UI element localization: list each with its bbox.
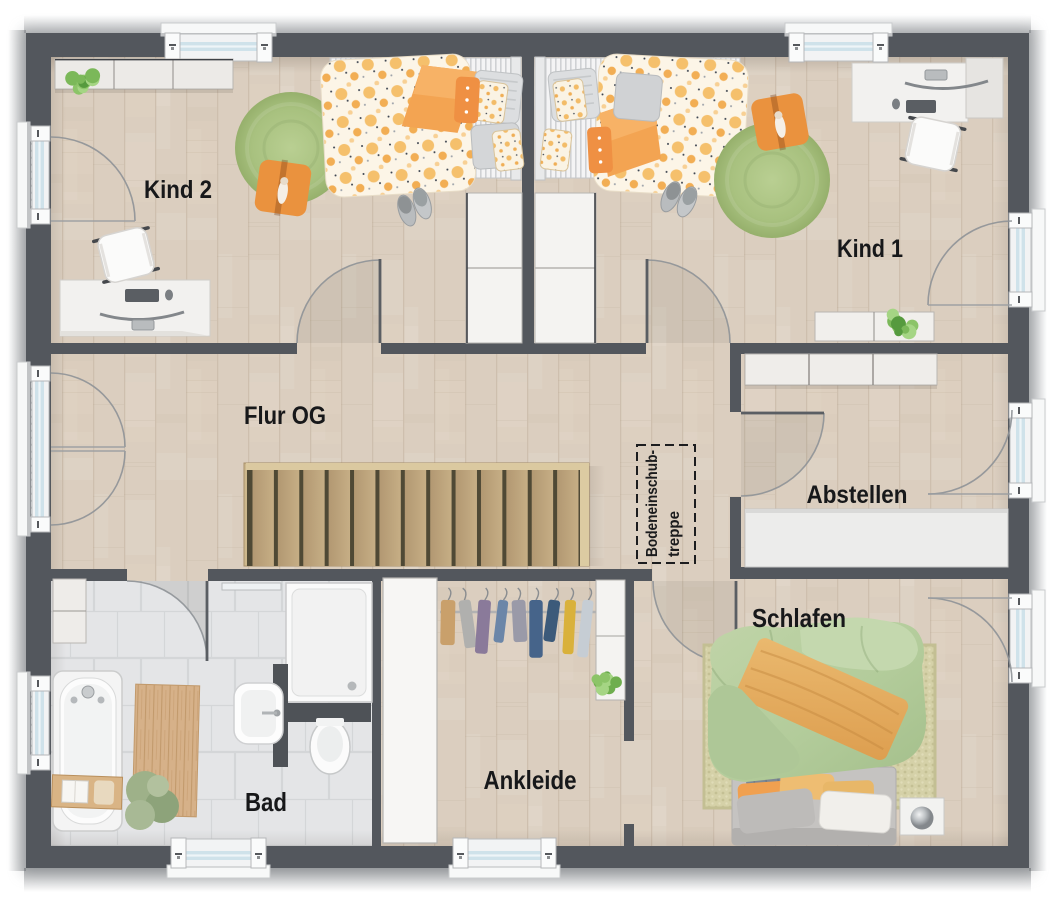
svg-text:Ankleide: Ankleide bbox=[484, 765, 577, 795]
svg-text:Kind 2: Kind 2 bbox=[144, 176, 212, 204]
svg-text:Flur OG: Flur OG bbox=[244, 402, 326, 430]
svg-text:Schlafen: Schlafen bbox=[752, 603, 846, 633]
svg-text:Abstellen: Abstellen bbox=[807, 481, 908, 509]
svg-text:Bodeneinschub-: Bodeneinschub- bbox=[644, 450, 661, 557]
svg-text:treppe: treppe bbox=[666, 511, 683, 557]
svg-text:Bad: Bad bbox=[245, 787, 287, 817]
svg-text:Kind 1: Kind 1 bbox=[837, 235, 903, 263]
